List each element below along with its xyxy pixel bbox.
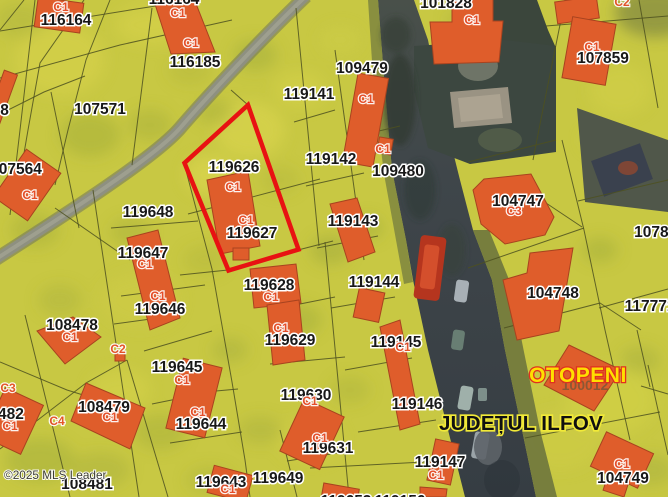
svg-text:C1: C1 <box>102 410 118 424</box>
svg-text:116185: 116185 <box>170 54 221 71</box>
svg-text:JUDEȚUL ILFOV: JUDEȚUL ILFOV <box>439 412 603 435</box>
svg-text:C3: C3 <box>506 204 522 218</box>
svg-text:119631: 119631 <box>303 440 354 457</box>
svg-text:119626: 119626 <box>209 159 260 176</box>
svg-text:C1: C1 <box>183 36 199 50</box>
svg-text:C1: C1 <box>375 142 391 156</box>
svg-text:119146: 119146 <box>392 396 443 413</box>
svg-text:117771: 117771 <box>625 298 668 315</box>
svg-text:109479: 109479 <box>336 60 388 77</box>
svg-text:C1: C1 <box>428 468 444 482</box>
svg-text:C1: C1 <box>2 419 18 433</box>
svg-text:107858: 107858 <box>634 224 668 241</box>
svg-text:C1: C1 <box>137 257 153 271</box>
svg-text:C1: C1 <box>170 6 186 20</box>
svg-text:C1: C1 <box>395 340 411 354</box>
svg-text:C2: C2 <box>614 0 630 9</box>
svg-text:C1: C1 <box>358 92 374 106</box>
svg-text:119629: 119629 <box>265 332 316 349</box>
svg-text:OTOPENI: OTOPENI <box>529 364 627 387</box>
svg-text:109480: 109480 <box>372 163 424 180</box>
svg-text:101828: 101828 <box>420 0 472 12</box>
svg-text:C1: C1 <box>150 289 166 303</box>
svg-text:107571: 107571 <box>74 101 126 118</box>
svg-text:C1: C1 <box>263 290 279 304</box>
svg-text:C1: C1 <box>464 13 480 27</box>
svg-text:C1: C1 <box>238 213 254 227</box>
svg-text:C2: C2 <box>110 342 126 356</box>
svg-text:C1: C1 <box>225 180 241 194</box>
svg-text:119143: 119143 <box>328 213 379 230</box>
svg-text:119141: 119141 <box>284 86 335 103</box>
svg-text:104749: 104749 <box>597 470 649 487</box>
svg-text:C1: C1 <box>174 373 190 387</box>
svg-text:C1: C1 <box>302 394 318 408</box>
svg-text:104748: 104748 <box>527 285 579 302</box>
svg-text:119653: 119653 <box>321 493 372 497</box>
svg-text:C1: C1 <box>22 188 38 202</box>
svg-text:C1: C1 <box>53 0 69 14</box>
svg-text:C1: C1 <box>312 431 328 445</box>
svg-text:119142: 119142 <box>306 151 357 168</box>
svg-text:C1: C1 <box>584 40 600 54</box>
svg-text:107564: 107564 <box>0 161 42 178</box>
svg-text:119649: 119649 <box>253 470 304 487</box>
svg-text:119648: 119648 <box>123 204 174 221</box>
svg-text:119627: 119627 <box>227 225 278 242</box>
svg-text:C1: C1 <box>614 457 630 471</box>
svg-text:©2025 MLS Leader: ©2025 MLS Leader <box>4 468 107 482</box>
svg-text:C4: C4 <box>49 414 65 428</box>
svg-text:C1: C1 <box>190 405 206 419</box>
svg-text:119144: 119144 <box>349 274 400 291</box>
svg-text:C3: C3 <box>0 381 16 395</box>
svg-text:C1: C1 <box>220 482 236 496</box>
svg-text:C1: C1 <box>62 330 78 344</box>
svg-text:C1: C1 <box>273 321 289 335</box>
svg-text:119646: 119646 <box>135 301 186 318</box>
svg-text:107568: 107568 <box>0 102 9 119</box>
svg-text:116164: 116164 <box>41 12 92 29</box>
svg-text:119156: 119156 <box>375 493 426 497</box>
